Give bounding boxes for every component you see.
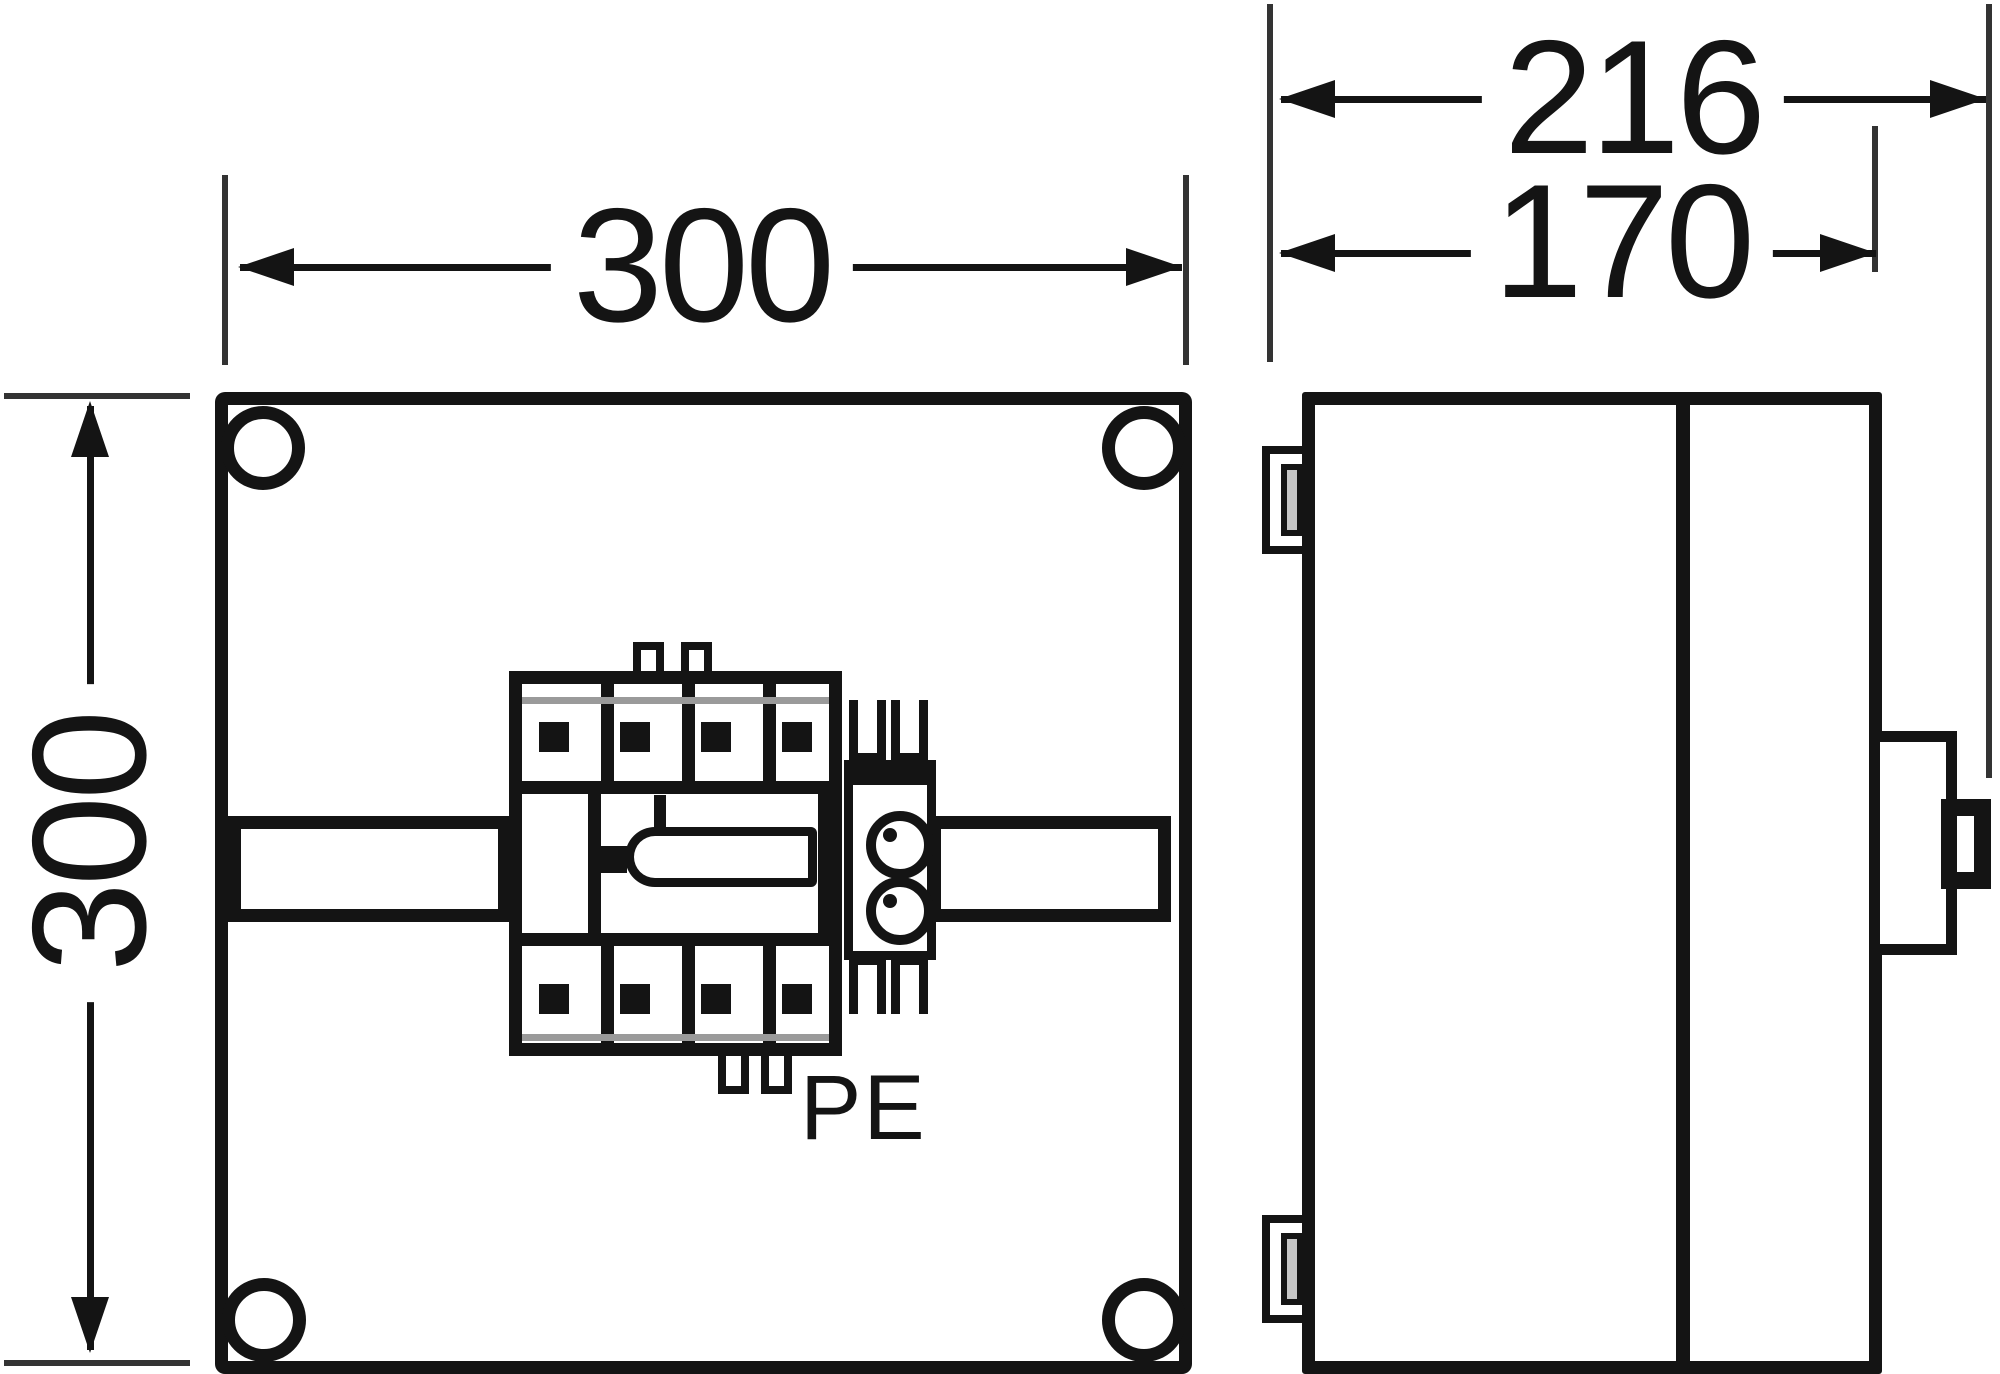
cover-seam-line xyxy=(1676,404,1690,1366)
terminal-row-bottom xyxy=(509,933,842,1056)
din-rail-left-segment xyxy=(228,816,511,922)
dimension-drawing: PE 300 300 216 170 xyxy=(0,0,2000,1374)
terminal-screw-dot xyxy=(620,984,650,1014)
terminal-screw-dot xyxy=(539,984,569,1014)
terminal-screw-dot xyxy=(539,722,569,752)
pe-terminal-body xyxy=(844,760,936,960)
hinge-slot xyxy=(1281,1233,1303,1305)
terminal-screw-dot xyxy=(782,984,812,1014)
terminal-divider xyxy=(763,946,776,1043)
extension-line xyxy=(4,393,190,399)
switch-bottom-clamp-2 xyxy=(761,1056,792,1094)
arrowhead-down xyxy=(71,1297,109,1353)
mounting-hole-top-left xyxy=(221,406,305,490)
switch-lever-tick xyxy=(654,795,666,831)
pe-clamp-bottom-2 xyxy=(891,956,928,1014)
pe-clamp-bottom-1 xyxy=(849,956,886,1014)
hinge-slot xyxy=(1281,464,1303,536)
terminal-shade-line xyxy=(522,697,829,704)
switch-lever-nub xyxy=(600,846,627,873)
arrowhead-right xyxy=(1126,248,1182,286)
extension-line xyxy=(222,175,228,365)
extension-line xyxy=(1986,4,1992,778)
terminal-divider xyxy=(682,946,695,1043)
terminal-screw-dot xyxy=(701,722,731,752)
pe-clamp-top-2 xyxy=(891,700,928,762)
pe-screw-bottom xyxy=(866,877,934,945)
mounting-hole-bottom-left xyxy=(222,1278,306,1362)
dimension-label-front-height: 300 xyxy=(9,684,171,1002)
dimension-label-base-depth: 170 xyxy=(1471,161,1773,323)
arrowhead-left xyxy=(238,248,294,286)
pe-screw-top xyxy=(866,811,934,879)
terminal-divider xyxy=(601,946,614,1043)
side-view-enclosure-outline xyxy=(1302,392,1882,1374)
switch-body-divider xyxy=(818,794,832,933)
terminal-shade-line xyxy=(522,1034,829,1041)
latch-knob xyxy=(1941,799,1991,889)
arrowhead-up xyxy=(71,401,109,457)
extension-line xyxy=(4,1360,190,1366)
terminal-screw-dot xyxy=(782,722,812,752)
terminal-screw-dot xyxy=(620,722,650,752)
arrowhead-right xyxy=(1930,80,1986,118)
din-rail-right-segment xyxy=(928,816,1171,922)
arrowhead-left xyxy=(1279,80,1335,118)
pe-terminal-top-band xyxy=(853,769,927,785)
latch-knob-slot xyxy=(1957,816,1974,872)
arrowhead-right xyxy=(1820,234,1876,272)
switch-lever-handle xyxy=(625,827,817,887)
mounting-hole-bottom-right xyxy=(1102,1278,1186,1362)
switch-bottom-clamp-1 xyxy=(718,1056,749,1094)
extension-line xyxy=(1183,175,1189,365)
terminal-row-top xyxy=(509,671,842,794)
pe-terminal-label: PE xyxy=(800,1062,927,1154)
terminal-screw-dot xyxy=(701,984,731,1014)
mounting-hole-top-right xyxy=(1102,406,1186,490)
pe-clamp-top-1 xyxy=(849,700,886,762)
extension-line xyxy=(1267,4,1273,362)
dimension-label-front-width: 300 xyxy=(551,185,853,347)
arrowhead-left xyxy=(1279,234,1335,272)
